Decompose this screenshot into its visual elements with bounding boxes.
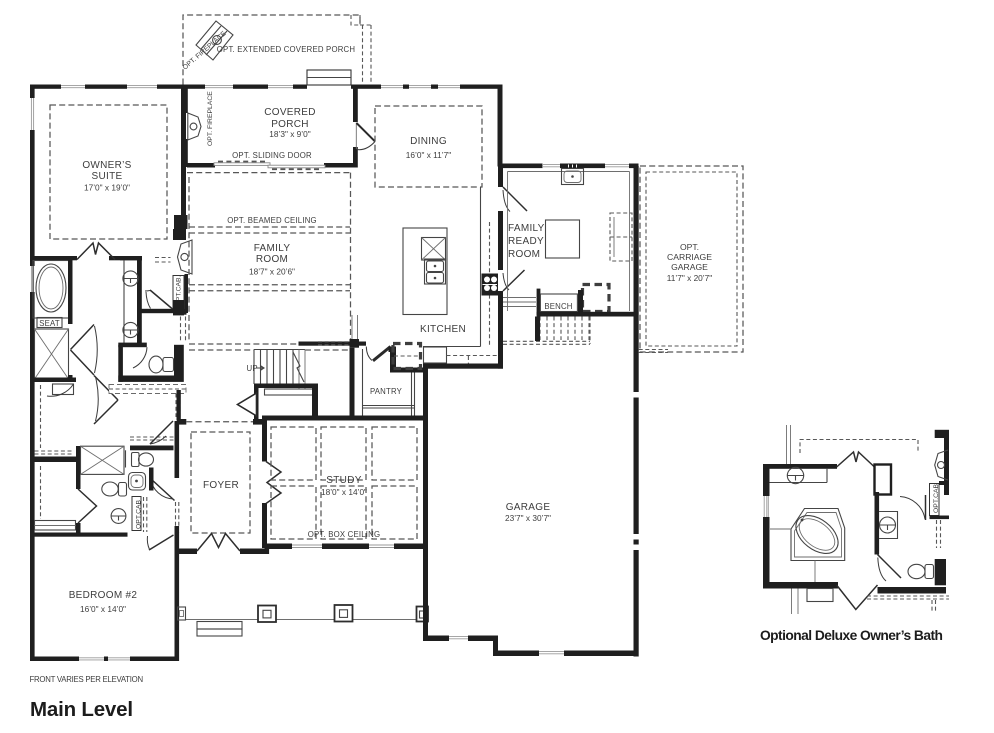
svg-text:KITCHEN: KITCHEN [420, 324, 466, 335]
svg-text:BEDROOM #2: BEDROOM #2 [69, 590, 138, 601]
svg-text:Main Level: Main Level [30, 698, 133, 721]
svg-text:OPT. EXTENDED COVERED PORCH: OPT. EXTENDED COVERED PORCH [217, 45, 355, 54]
svg-text:GARAGE: GARAGE [671, 262, 708, 272]
svg-text:ROOM: ROOM [508, 249, 540, 260]
svg-text:OPT. BEAMED CEILING: OPT. BEAMED CEILING [227, 216, 317, 225]
svg-text:17’0" x 19’0": 17’0" x 19’0" [84, 183, 130, 193]
svg-text:OPT. FIREPLACE: OPT. FIREPLACE [207, 91, 214, 146]
svg-text:OPT.: OPT. [680, 242, 699, 252]
svg-text:16’0" x 11’7": 16’0" x 11’7" [406, 150, 451, 160]
svg-text:OPT. SLIDING DOOR: OPT. SLIDING DOOR [232, 151, 312, 160]
svg-text:ROOM: ROOM [256, 254, 288, 265]
svg-text:FAMILY: FAMILY [508, 223, 545, 234]
svg-text:READY: READY [508, 236, 544, 247]
svg-text:FAMILY: FAMILY [254, 243, 291, 254]
svg-text:GARAGE: GARAGE [506, 502, 551, 513]
svg-text:SUITE: SUITE [92, 171, 123, 182]
svg-text:FOYER: FOYER [203, 480, 239, 491]
svg-text:PANTRY: PANTRY [370, 387, 403, 396]
svg-text:11’7" x 20’7": 11’7" x 20’7" [667, 273, 712, 283]
svg-text:OPT.CAB: OPT.CAB [136, 499, 143, 529]
svg-text:BENCH: BENCH [544, 302, 572, 311]
svg-text:18’7" x 20’6": 18’7" x 20’6" [249, 267, 295, 277]
svg-text:16’0" x 14’0": 16’0" x 14’0" [80, 604, 126, 614]
svg-text:Optional Deluxe Owner’s Bath: Optional Deluxe Owner’s Bath [760, 628, 943, 643]
svg-text:STUDY: STUDY [326, 475, 361, 486]
svg-text:CARRIAGE: CARRIAGE [667, 252, 712, 262]
svg-text:FRONT VARIES PER ELEVATION: FRONT VARIES PER ELEVATION [30, 675, 143, 684]
svg-text:SEAT: SEAT [39, 319, 60, 328]
svg-text:COVERED: COVERED [264, 107, 316, 118]
svg-text:23’7" x 30’7": 23’7" x 30’7" [505, 513, 551, 523]
svg-text:OPT. BOX CEILING: OPT. BOX CEILING [308, 530, 381, 539]
svg-text:OPT.CAB: OPT.CAB [933, 483, 940, 513]
svg-text:DINING: DINING [410, 136, 447, 147]
svg-text:18’0" x 14’0": 18’0" x 14’0" [321, 487, 367, 497]
svg-text:OWNER’S: OWNER’S [82, 160, 131, 171]
svg-text:18’3" x 9’0": 18’3" x 9’0" [269, 129, 310, 139]
